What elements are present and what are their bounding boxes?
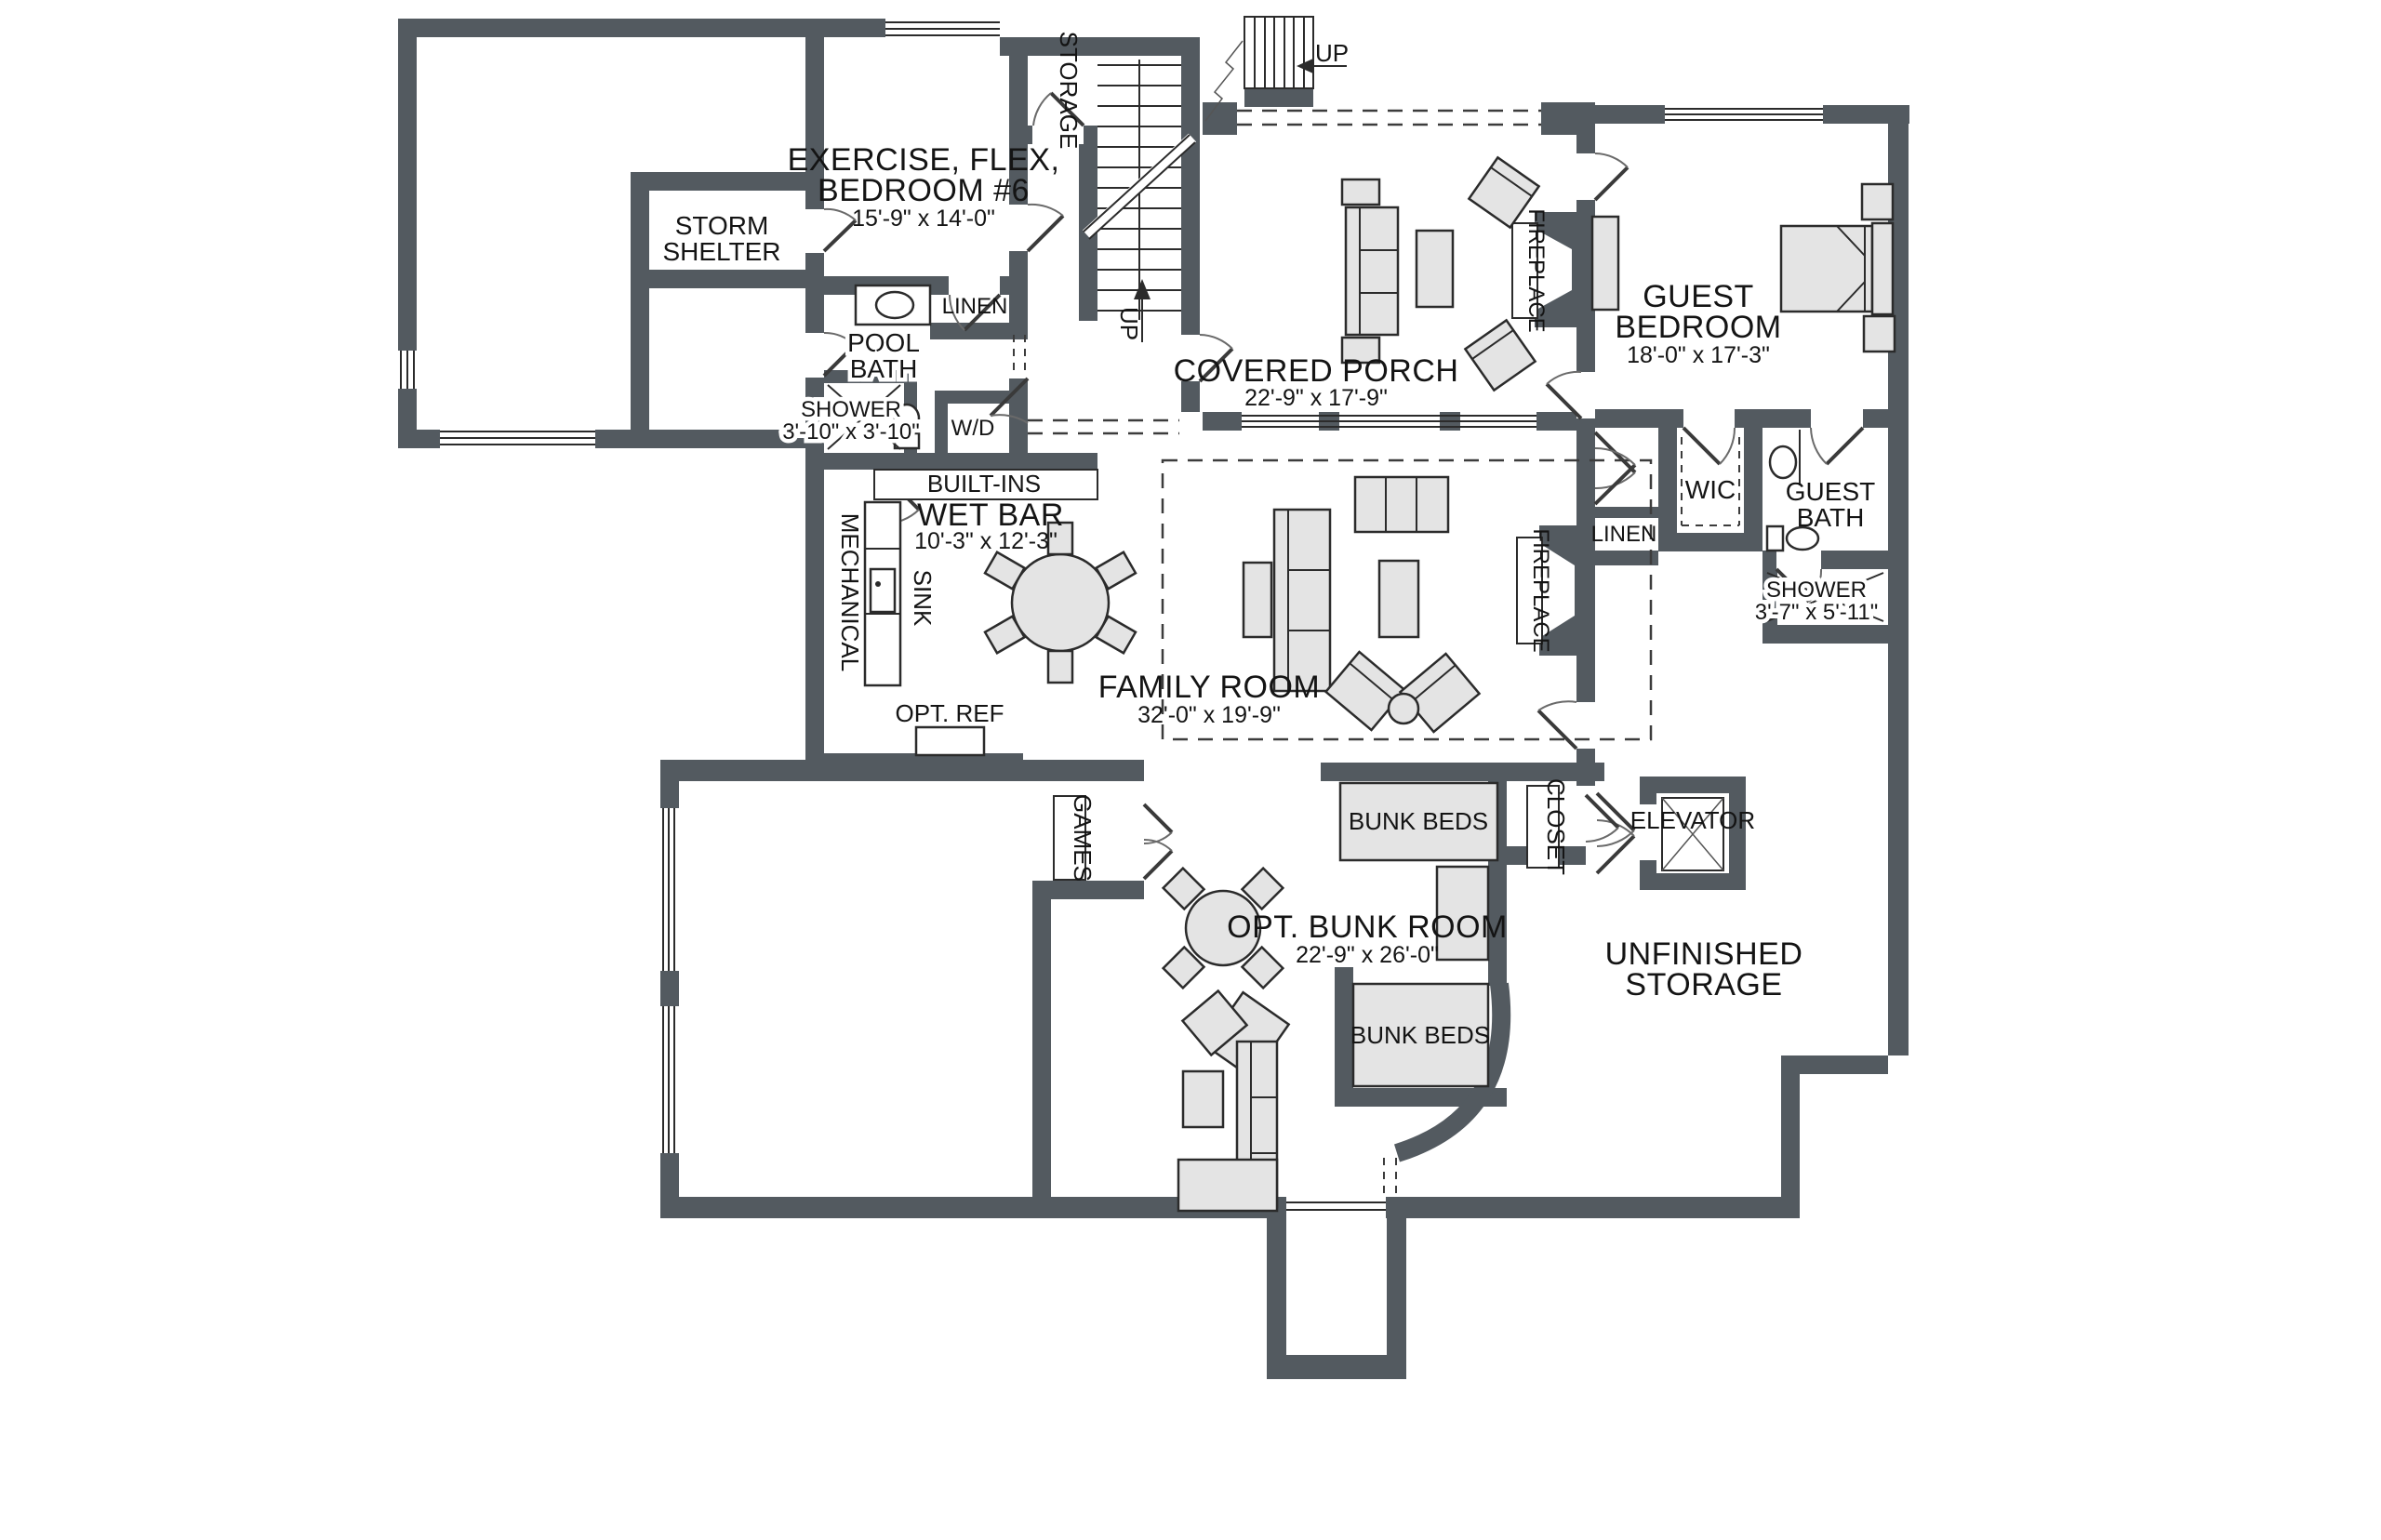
- family-coffee-table: [1379, 561, 1418, 637]
- up-exterior-label: UP: [1315, 39, 1349, 67]
- linen-pool-label: LINEN: [942, 294, 1008, 319]
- mechanical-label: MECHANICAL: [836, 513, 864, 671]
- wd-label: W/D: [951, 416, 995, 441]
- elevator-label: ELEVATOR: [1630, 806, 1755, 834]
- windows: [401, 22, 1823, 1210]
- family-loveseat: [1355, 477, 1448, 532]
- porch-coffee-table: [1417, 231, 1453, 307]
- guest-shower-label: SHOWER: [1766, 577, 1867, 603]
- guest-bed-headboard: [1872, 223, 1893, 314]
- guest-nightstand-2: [1864, 316, 1895, 352]
- guest-bedroom-dims: 18'-0" x 17'-3": [1627, 342, 1770, 368]
- guest-bath-label: GUEST: [1786, 477, 1875, 506]
- interior-staircase: [1084, 60, 1195, 342]
- family-room-label: FAMILY ROOM: [1098, 670, 1321, 705]
- storm-shelter-label: STORM: [675, 211, 769, 240]
- sink-label: SINK: [909, 570, 937, 627]
- pool-shower-dims: 3'-10" x 3'-10": [782, 419, 920, 445]
- opt-ref-label: OPT. REF: [895, 699, 1004, 727]
- pool-bath-label: POOL: [847, 328, 920, 357]
- wet-bar-table: [1012, 554, 1109, 651]
- exercise-room-dims: 15'-9" x 14'-0": [852, 206, 995, 232]
- floor-plan-drawing: EXERCISE, FLEX, BEDROOM #6 15'-9" x 14'-…: [0, 0, 2381, 1540]
- games-label: GAMES: [1069, 794, 1097, 882]
- family-sofa: [1274, 510, 1330, 691]
- family-room-dims: 32'-0" x 19'-9": [1137, 702, 1281, 728]
- built-ins-label: BUILT-INS: [927, 470, 1041, 498]
- guest-bed-mattress: [1781, 226, 1872, 312]
- family-side-table: [1244, 563, 1271, 637]
- bunk-side-table: [1183, 1071, 1223, 1127]
- exercise-room-label2: BEDROOM #6: [818, 173, 1030, 208]
- guest-bath-sink: [1770, 446, 1796, 478]
- porch-side-table-top: [1342, 179, 1379, 205]
- bunk-beds-bottom-label: BUNK BEDS: [1350, 1021, 1490, 1049]
- covered-porch-label: COVERED PORCH: [1174, 353, 1459, 389]
- storm-shelter-label2: SHELTER: [662, 237, 780, 266]
- guest-shower-dims: 3'-7" x 5'-11": [1755, 600, 1878, 625]
- pool-bath-sink: [876, 292, 913, 318]
- chair: [1048, 651, 1072, 683]
- pool-bath-label2: BATH: [850, 354, 918, 383]
- fireplace-family-label: FIREPLACE: [1528, 528, 1553, 652]
- opt-bunk-room-label: OPT. BUNK ROOM: [1227, 909, 1508, 945]
- guest-bench: [1592, 217, 1618, 310]
- opt-ref-box: [916, 727, 984, 755]
- family-round-table: [1389, 694, 1418, 724]
- porch-sofa: [1346, 207, 1398, 335]
- wet-bar-sink: [871, 569, 895, 612]
- guest-bath-label2: BATH: [1797, 503, 1865, 532]
- pool-shower-label: SHOWER: [801, 397, 901, 422]
- guest-bedroom-label2: BEDROOM: [1615, 310, 1781, 345]
- covered-porch-dims: 22'-9" x 17'-9": [1244, 385, 1388, 411]
- guest-nightstand-1: [1862, 184, 1893, 219]
- bunk-sectional-horizontal: [1178, 1160, 1277, 1211]
- unfinished-storage-label2: STORAGE: [1625, 967, 1782, 1002]
- storage-closet-label: STORAGE: [1055, 32, 1083, 150]
- linen-guest-label: LINEN: [1591, 522, 1657, 547]
- opt-bunk-room-dims: 22'-9" x 26'-0": [1296, 942, 1439, 968]
- closet-bunk-label: CLOSET: [1542, 778, 1570, 875]
- floor-plan-page: EXERCISE, FLEX, BEDROOM #6 15'-9" x 14'-…: [0, 0, 2381, 1540]
- up-interior-label: UP: [1115, 307, 1143, 340]
- wet-bar-dims: 10'-3" x 12'-3": [914, 528, 1057, 554]
- wic-label: WIC: [1685, 475, 1736, 504]
- fireplace-porch-label: FIREPLACE: [1523, 208, 1549, 332]
- bunk-beds-top-label: BUNK BEDS: [1349, 807, 1488, 835]
